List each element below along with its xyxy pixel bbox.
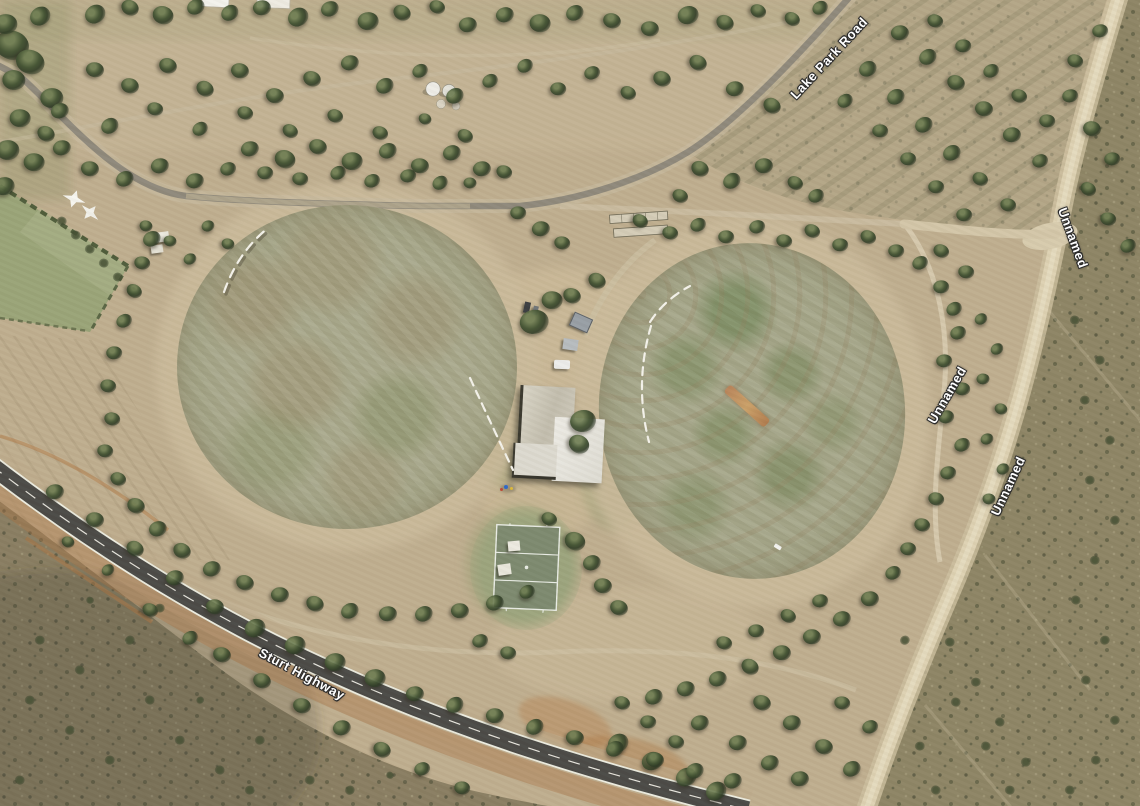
road-label-sturt-highway: Sturt Highway: [256, 645, 347, 703]
road-label-unnamed: Unnamed: [988, 454, 1028, 518]
road-label-unnamed: Unnamed: [1055, 206, 1091, 271]
map-canvas[interactable]: Lake Park RoadUnnamedUnnamedUnnamedSturt…: [0, 0, 1140, 806]
road-label-unnamed: Unnamed: [925, 364, 970, 426]
road-label-lake-park-road: Lake Park Road: [787, 14, 870, 102]
road-labels-layer: Lake Park RoadUnnamedUnnamedUnnamedSturt…: [0, 0, 1140, 806]
